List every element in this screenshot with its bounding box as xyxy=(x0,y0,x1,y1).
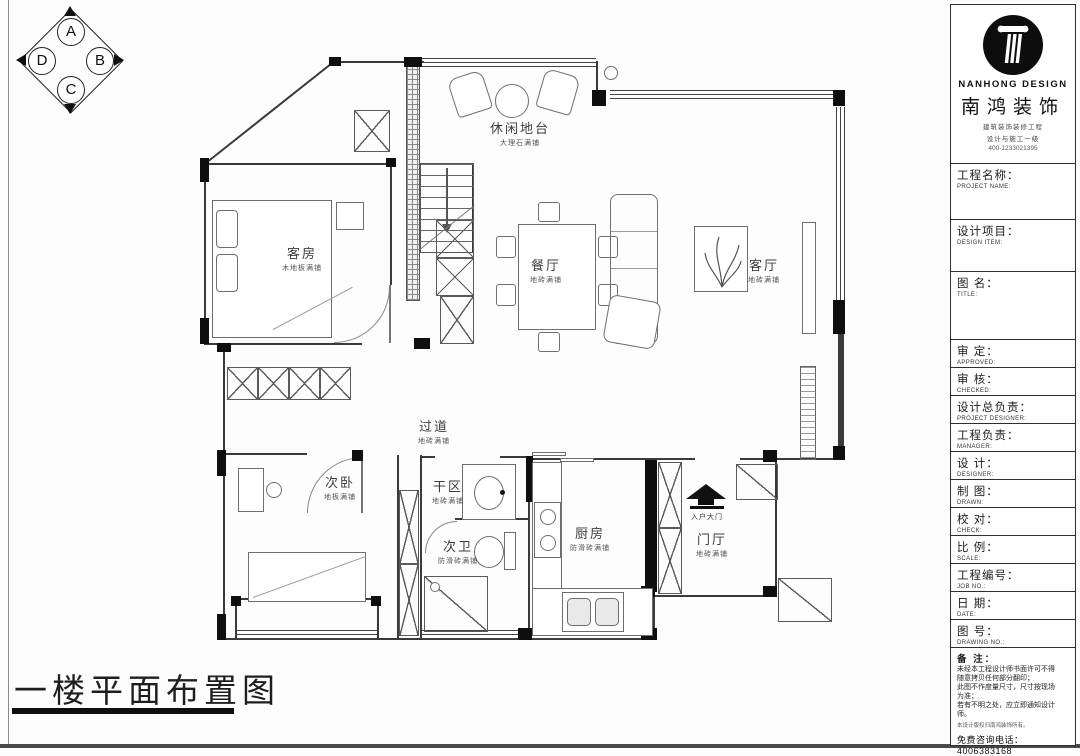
room-name: 干区 xyxy=(432,476,464,495)
stair-arrow xyxy=(446,168,448,224)
field-label-en: DATE: xyxy=(957,612,1070,618)
room-name: 客厅 xyxy=(748,255,780,274)
room-name: 次卫 xyxy=(438,536,478,555)
armchair xyxy=(447,69,494,118)
tv-cabinet xyxy=(802,222,816,334)
column-block xyxy=(518,628,532,640)
entry-label: 入户大门 xyxy=(691,512,723,522)
room-name: 休闲地台 xyxy=(490,118,550,137)
room-label-guest-room: 客房 木地板满铺 xyxy=(282,243,322,273)
compass-arrow-icon xyxy=(16,54,26,66)
dining-chair xyxy=(538,332,560,352)
compass-letter-a: A xyxy=(57,18,85,46)
field-label-en: APPROVED: xyxy=(957,360,1070,366)
note-line-small: 本设计版权归南鸿装饰所有。 xyxy=(957,721,1070,729)
compass-arrow-icon xyxy=(114,54,124,66)
field-label-cn: 设计总负责： xyxy=(957,399,1070,415)
field-chief-designer: 设计总负责： PROJECT DESIGNER: xyxy=(951,395,1075,423)
stove-icon xyxy=(534,502,561,558)
outdoor-step xyxy=(778,578,832,622)
closet-cell xyxy=(258,367,289,400)
room-name: 餐厅 xyxy=(530,255,562,274)
logo-phone: 400-1233021395 xyxy=(988,145,1037,152)
chaise xyxy=(602,294,662,350)
wall-hatch xyxy=(399,490,419,564)
column-block xyxy=(352,450,363,461)
desk-chair xyxy=(266,482,282,498)
wall-segment xyxy=(223,343,225,640)
column-hatch xyxy=(440,296,474,344)
note-line: 此图不作度量尺寸，尺寸按现场 xyxy=(957,683,1070,692)
sheet-border xyxy=(8,0,9,746)
column-block xyxy=(217,450,226,476)
field-date: 日 期： DATE: xyxy=(951,591,1075,619)
room-label-leisure-platform: 休闲地台 大理石满铺 xyxy=(490,118,550,148)
room-label-kitchen: 厨房 防滑砖满铺 xyxy=(570,523,610,553)
column-icon xyxy=(993,23,1033,67)
room-name: 次卧 xyxy=(324,472,356,491)
closet-cell xyxy=(289,367,320,400)
room-finish: 地砖满铺 xyxy=(530,275,562,285)
field-label-cn: 工程负责： xyxy=(957,427,1070,443)
field-job-no: 工程编号： JOB NO.: xyxy=(951,563,1075,591)
sliding-door xyxy=(560,458,594,462)
toilet-icon xyxy=(474,536,504,568)
wall-segment xyxy=(390,163,392,285)
room-finish: 木地板满铺 xyxy=(282,263,322,273)
room-label-second-bedroom: 次卧 地板满铺 xyxy=(324,472,356,502)
shoe-cabinet xyxy=(736,464,778,500)
title-block-panel: NANHONG DESIGN 南鸿装饰 建筑装饰装修工程 设计与施工一级 400… xyxy=(950,4,1076,746)
wall-segment xyxy=(655,595,777,597)
column-block xyxy=(833,90,845,106)
sink-icon xyxy=(562,592,624,632)
note-line: 若有不明之处，应立即通知设计 xyxy=(957,701,1070,710)
round-table xyxy=(495,84,529,118)
door-leaf xyxy=(361,457,363,513)
field-label-en: DRAWING NO.: xyxy=(957,640,1070,646)
field-label-en: TITLE: xyxy=(957,292,1070,298)
room-label-dry-area: 干区 地砖满铺 xyxy=(432,476,464,506)
field-label-cn: 工程编号： xyxy=(957,567,1070,583)
wall-segment xyxy=(655,458,695,460)
wall-segment xyxy=(205,59,336,164)
field-approved: 审 定： APPROVED: xyxy=(951,339,1075,367)
column-block xyxy=(763,450,777,462)
field-label-cn: 制 图： xyxy=(957,483,1070,499)
field-label-cn: 图 名： xyxy=(957,275,1070,291)
column-block xyxy=(386,158,396,167)
room-finish: 地砖满铺 xyxy=(696,549,728,559)
burner-icon xyxy=(540,509,556,525)
field-drawn: 制 图： DRAWN: xyxy=(951,479,1075,507)
door-leaf xyxy=(389,285,391,343)
column-block xyxy=(833,446,845,460)
hotline: 免费咨询电话：4006383168 xyxy=(957,733,1070,756)
field-project-name: 工程名称： PROJECT NAME: xyxy=(951,163,1075,219)
cabinet-hatch xyxy=(354,110,390,152)
logo-name-en: NANHONG DESIGN xyxy=(958,79,1067,90)
burner-icon xyxy=(540,535,556,551)
pillow xyxy=(216,210,238,248)
note-line: 师。 xyxy=(957,710,1070,719)
pillow xyxy=(216,254,238,292)
room-finish: 大理石满铺 xyxy=(490,138,550,148)
room-name: 客房 xyxy=(282,243,322,262)
room-finish: 地砖满铺 xyxy=(418,436,450,446)
compass-arrow-icon xyxy=(64,104,76,114)
dining-chair xyxy=(496,284,516,306)
compass-rose: A B C D xyxy=(16,6,124,114)
column-block xyxy=(371,596,381,606)
column-block xyxy=(231,596,241,606)
field-drawing-title: 图 名： TITLE: xyxy=(951,271,1075,339)
room-label-living: 客厅 地砖满铺 xyxy=(748,255,780,285)
column-block xyxy=(833,300,845,334)
window xyxy=(610,90,835,99)
nightstand xyxy=(336,202,364,230)
company-logo: NANHONG DESIGN 南鸿装饰 建筑装饰装修工程 设计与施工一级 400… xyxy=(951,5,1075,163)
room-label-foyer: 门厅 地砖满铺 xyxy=(696,529,728,559)
sink-bowl xyxy=(595,598,619,626)
wall-hatch xyxy=(658,528,682,594)
wall-segment xyxy=(204,163,392,165)
note-line: 为准； xyxy=(957,692,1070,701)
masonry-wall xyxy=(406,61,420,301)
field-scale: 比 例： SCALE: xyxy=(951,535,1075,563)
sheet-border xyxy=(0,744,1080,748)
entry-arrow-icon xyxy=(698,499,714,505)
field-label-en: DESIGNER: xyxy=(957,472,1070,478)
field-label-en: PROJECT NAME: xyxy=(957,184,1070,190)
compass-letter-d: D xyxy=(28,47,56,75)
blanket-line xyxy=(253,556,366,598)
room-finish: 防滑砖满铺 xyxy=(438,556,478,566)
armchair xyxy=(535,68,581,116)
window xyxy=(422,58,596,67)
plant-box xyxy=(694,226,748,292)
dining-chair xyxy=(496,236,516,258)
sink-bowl xyxy=(567,598,591,626)
compass-letter-b: B xyxy=(86,47,114,75)
column-block xyxy=(763,586,777,597)
field-label-en: DESIGN ITEM: xyxy=(957,240,1070,246)
wall-hatch xyxy=(658,462,682,528)
wall-hatch xyxy=(399,564,419,636)
note-line: 未经本工程设计师书面许可不得 xyxy=(957,665,1070,674)
field-label-cn: 工程名称： xyxy=(957,167,1070,183)
logo-subline: 建筑装饰装修工程 xyxy=(983,121,1043,131)
column-block xyxy=(217,614,226,640)
sheet-title: 一楼平面布置图 xyxy=(14,664,280,712)
room-label-corridor: 过道 地砖满铺 xyxy=(418,416,450,446)
window xyxy=(836,107,845,303)
entry-arrow-icon xyxy=(686,484,726,499)
column-block xyxy=(329,57,341,66)
room-finish: 地砖满铺 xyxy=(432,496,464,506)
column-block xyxy=(217,343,231,352)
field-proofread: 校 对： CHECK: xyxy=(951,507,1075,535)
room-name: 厨房 xyxy=(570,523,610,542)
column-block xyxy=(414,338,430,349)
field-checked: 审 核： CHECKED: xyxy=(951,367,1075,395)
decor-circle xyxy=(604,66,618,80)
shower-head-icon xyxy=(430,582,440,592)
field-design-item: 设计项目： DESIGN ITEM: xyxy=(951,219,1075,271)
room-finish: 地板满铺 xyxy=(324,492,356,502)
field-label-en: PROJECT DESIGNER: xyxy=(957,416,1070,422)
field-project-manager: 工程负责： MANAGER: xyxy=(951,423,1075,451)
field-label-cn: 审 核： xyxy=(957,371,1070,387)
logo-name-cn: 南鸿装饰 xyxy=(961,92,1065,119)
closet-cell xyxy=(320,367,351,400)
field-label-cn: 审 定： xyxy=(957,343,1070,359)
tatami-bed xyxy=(248,552,366,602)
field-label-en: CHECKED: xyxy=(957,388,1070,394)
notes-section: 备 注： 未经本工程设计师书面许可不得 随意拷贝任何部分翻印； 此图不作度量尺寸… xyxy=(951,647,1075,756)
field-label-en: DRAWN: xyxy=(957,500,1070,506)
room-finish: 地砖满铺 xyxy=(748,275,780,285)
sliding-door xyxy=(532,452,566,456)
dining-chair xyxy=(538,202,560,222)
wall-black-band xyxy=(645,460,657,592)
door-arc xyxy=(334,287,390,343)
wall-segment xyxy=(223,453,307,455)
room-label-dining: 餐厅 地砖满铺 xyxy=(530,255,562,285)
field-drawing-no: 图 号： DRAWING NO.: xyxy=(951,619,1075,647)
closet-cell xyxy=(227,367,258,400)
column-hatch xyxy=(436,258,474,296)
bay-window xyxy=(237,630,377,639)
drawing-sheet: A B C D xyxy=(0,0,1080,756)
note-line: 随意拷贝任何部分翻印； xyxy=(957,674,1070,683)
logo-mark xyxy=(983,15,1043,75)
notes-label: 备 注： xyxy=(957,651,1070,665)
field-label-en: JOB NO.: xyxy=(957,584,1070,590)
field-designer: 设 计： DESIGNER: xyxy=(951,451,1075,479)
field-label-cn: 日 期： xyxy=(957,595,1070,611)
field-label-cn: 设计项目： xyxy=(957,223,1070,239)
logo-subline: 设计与施工一级 xyxy=(987,133,1040,143)
field-label-en: MANAGER: xyxy=(957,444,1070,450)
column-block xyxy=(592,90,606,106)
column-hatch xyxy=(436,220,474,258)
compass-letter-c: C xyxy=(57,76,85,104)
wall-segment xyxy=(420,455,422,640)
plant-icon xyxy=(695,227,749,293)
tap-icon xyxy=(500,490,505,495)
column-block xyxy=(404,57,422,67)
compass-arrow-icon xyxy=(64,6,76,16)
sheet-title-underline xyxy=(12,708,234,714)
room-label-second-bath: 次卫 防滑砖满铺 xyxy=(438,536,478,566)
column-block xyxy=(200,158,209,182)
desk xyxy=(238,468,264,512)
field-label-cn: 校 对： xyxy=(957,511,1070,527)
field-label-en: CHECK: xyxy=(957,528,1070,534)
room-name: 门厅 xyxy=(696,529,728,548)
field-label-cn: 比 例： xyxy=(957,539,1070,555)
toilet-tank xyxy=(504,532,516,570)
entry-arrow-icon xyxy=(690,506,724,509)
radiator-cabinet xyxy=(800,366,816,460)
field-label-cn: 设 计： xyxy=(957,455,1070,471)
column-block xyxy=(200,318,209,344)
field-label-cn: 图 号： xyxy=(957,623,1070,639)
field-label-en: SCALE: xyxy=(957,556,1070,562)
wall-segment xyxy=(420,456,435,458)
room-finish: 防滑砖满铺 xyxy=(570,543,610,553)
room-name: 过道 xyxy=(418,416,450,435)
